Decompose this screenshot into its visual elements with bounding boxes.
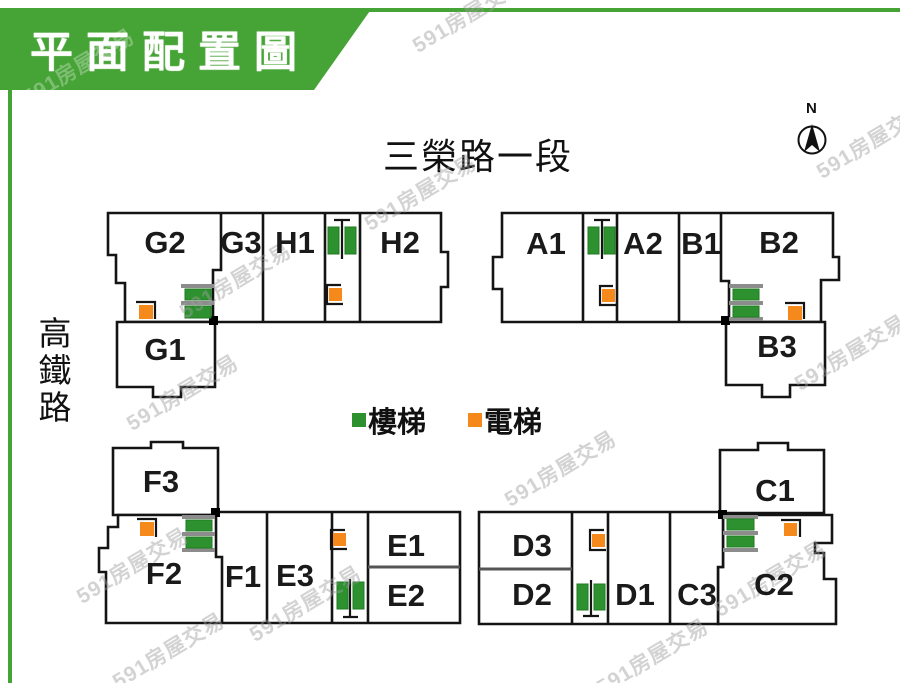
unit-label-h1: H1	[275, 225, 315, 261]
unit-label-c3: C3	[677, 577, 717, 613]
stairs-icon-g2	[181, 284, 214, 318]
junction-dot	[721, 316, 730, 325]
stairs-legend-label: 樓梯	[368, 399, 426, 441]
unit-label-h2: H2	[380, 225, 420, 261]
stairs-icon-f	[182, 515, 215, 552]
unit-label-g3: G3	[220, 225, 261, 261]
floor-plan-page: 平面配置圖 三榮路一段 高鐵路 N	[0, 0, 900, 683]
stairs-icon-b2	[729, 284, 763, 321]
elevator-legend-swatch	[468, 413, 482, 427]
unit-label-g2: G2	[144, 225, 185, 261]
unit-label-e2: E2	[387, 578, 425, 614]
unit-label-b3: B3	[757, 329, 797, 365]
unit-label-e1: E1	[387, 528, 425, 564]
unit-label-g1: G1	[144, 332, 185, 368]
unit-label-f1: F1	[225, 559, 261, 595]
unit-label-c1: C1	[755, 473, 795, 509]
unit-label-b1: B1	[681, 226, 721, 262]
elevator-legend-label: 電梯	[484, 399, 542, 441]
unit-label-f2: F2	[146, 556, 182, 592]
unit-label-d2: D2	[512, 577, 552, 613]
unit-label-e3: E3	[276, 558, 314, 594]
unit-label-b2: B2	[759, 225, 799, 261]
unit-label-a1: A1	[526, 226, 566, 262]
legend: 樓梯 電梯	[352, 399, 542, 441]
unit-label-a2: A2	[623, 226, 663, 262]
stairs-legend-swatch	[352, 413, 366, 427]
stairs-icon-c2	[723, 515, 758, 552]
unit-label-d3: D3	[512, 528, 552, 564]
unit-label-f3: F3	[143, 464, 179, 500]
unit-label-c2: C2	[754, 567, 794, 603]
unit-label-d1: D1	[615, 577, 655, 613]
